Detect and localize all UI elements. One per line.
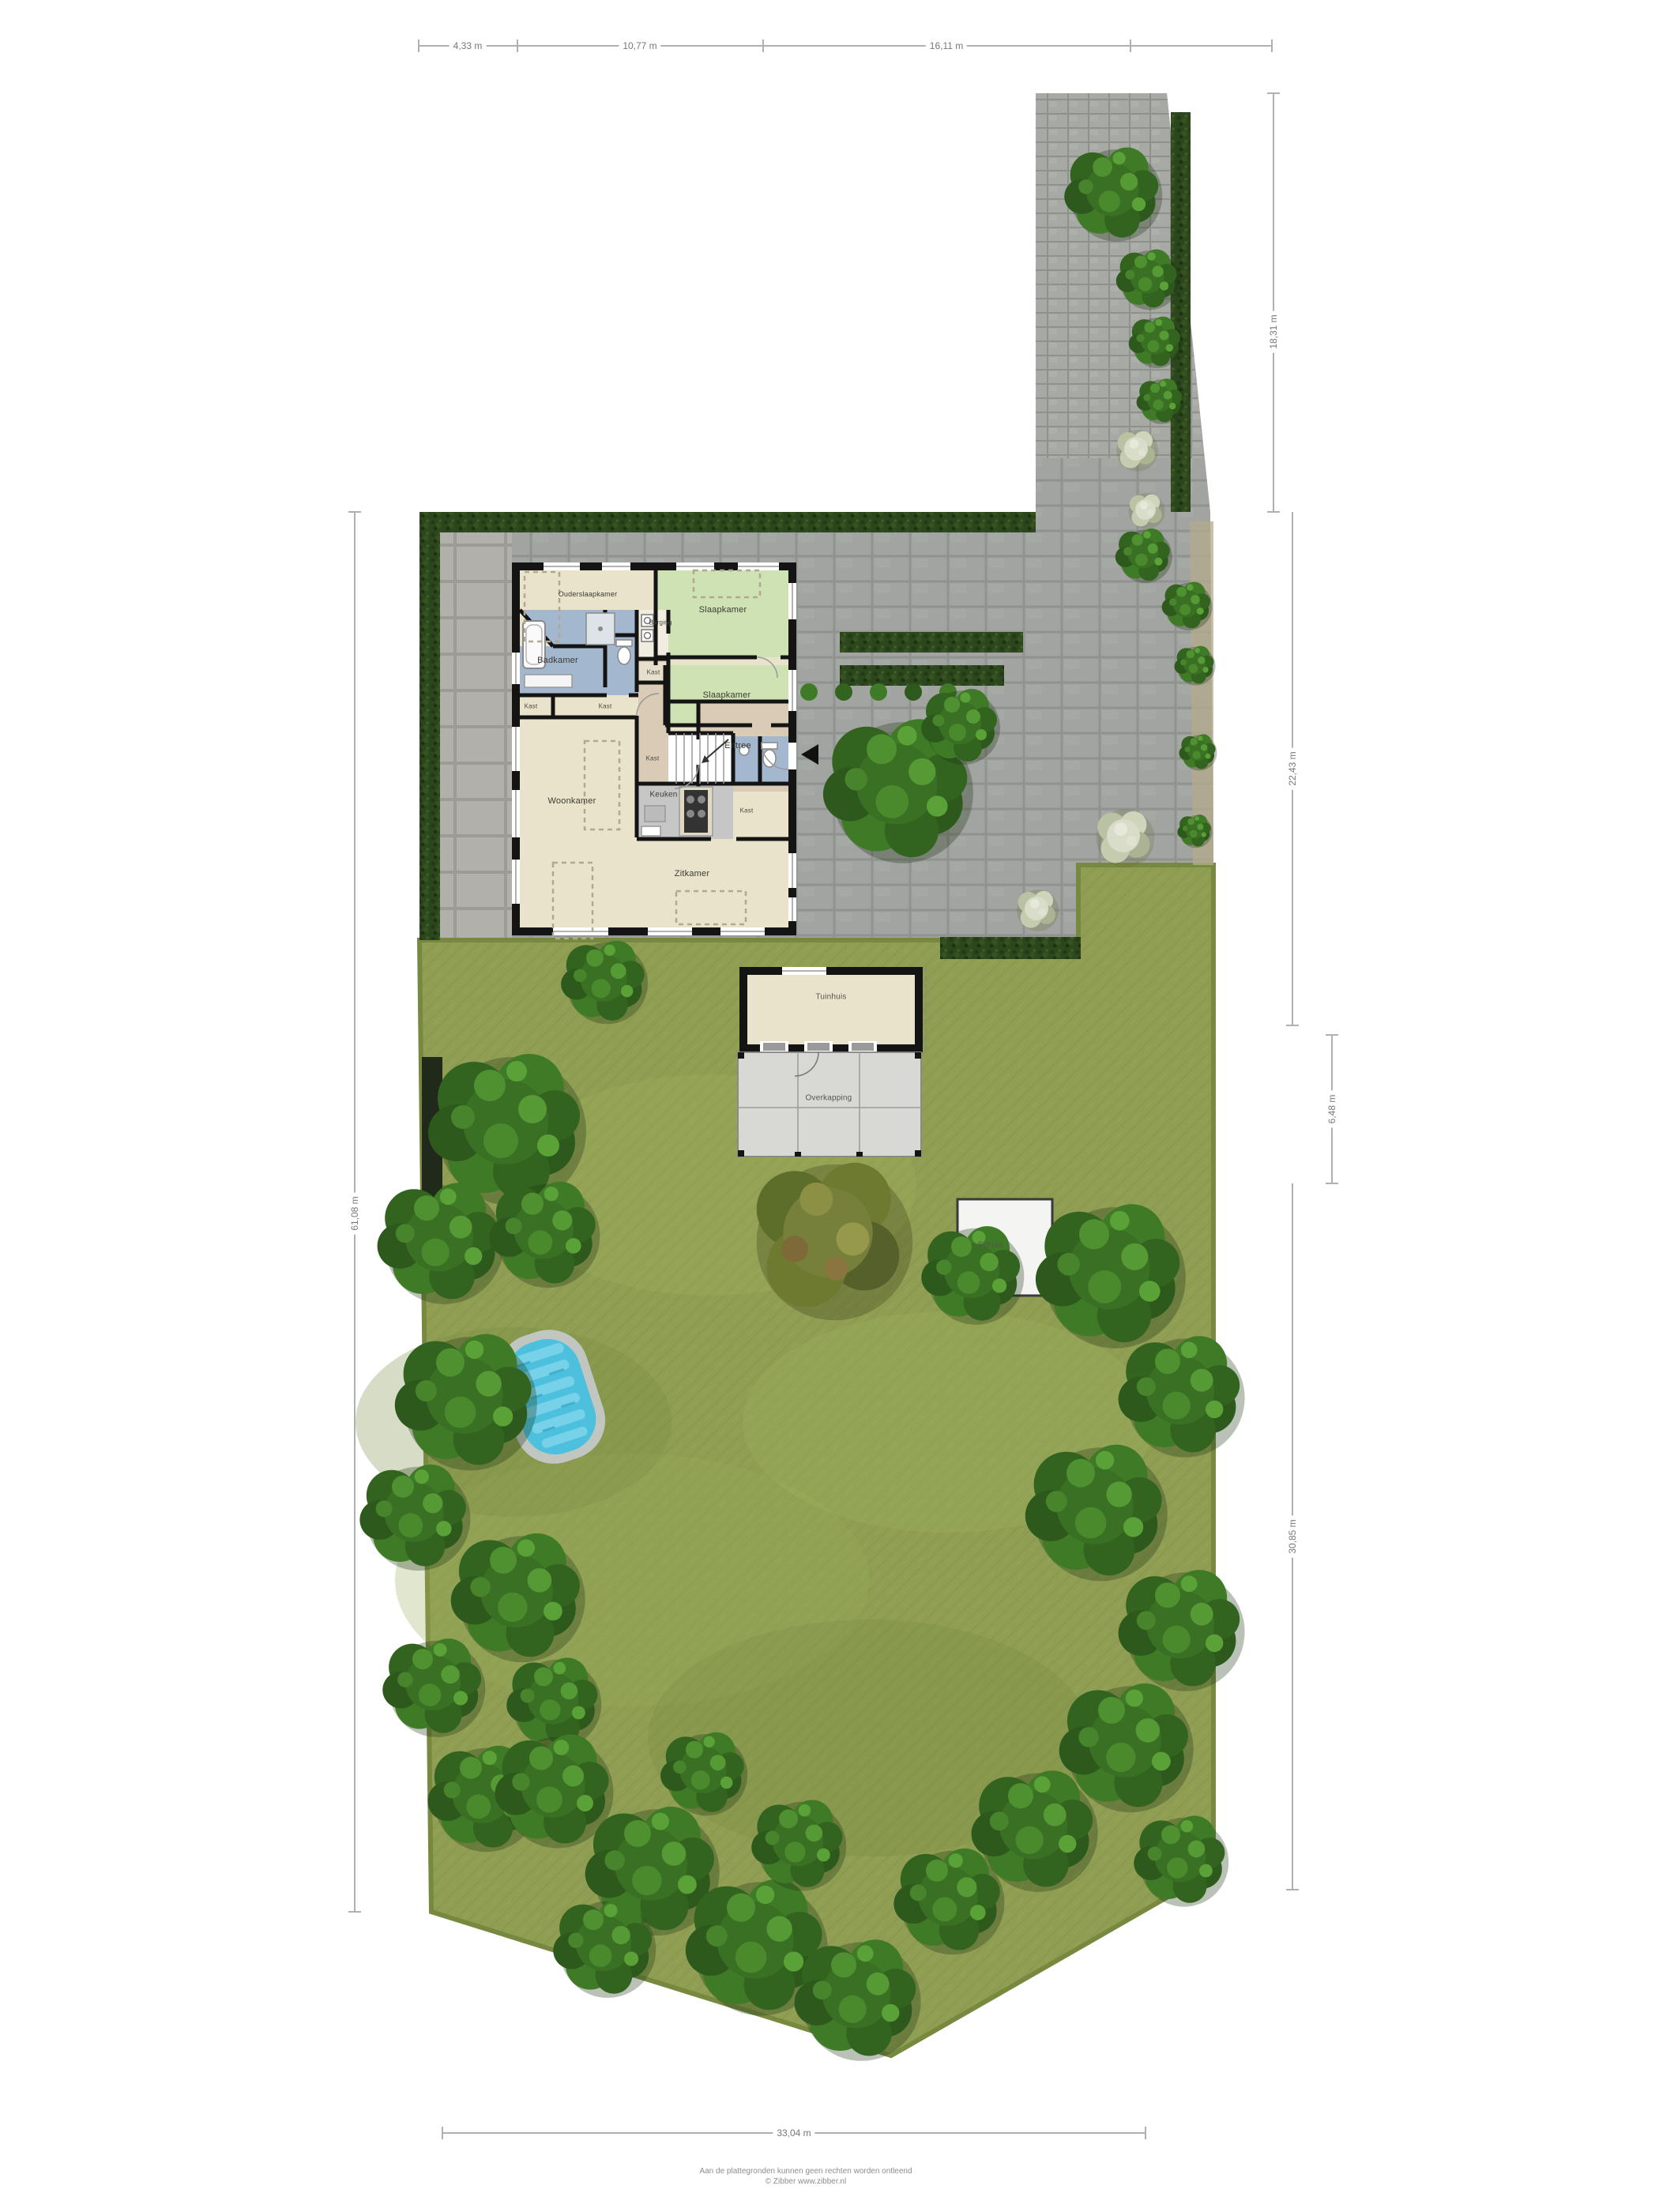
garden-house-doors — [760, 1041, 877, 1052]
room-label-kast-2: Kast — [599, 703, 612, 710]
border-strip-right — [1190, 521, 1213, 865]
room-label-kast-3: Kast — [647, 669, 660, 676]
room-label-kast-4: Kast — [646, 755, 660, 762]
disclaimer-line1: Aan de plattegronden kunnen geen rechten… — [699, 2166, 912, 2176]
hedge-row-mid — [940, 937, 1081, 959]
label-tuinhuis: Tuinhuis — [815, 993, 846, 1002]
site-plan: 4,33 m 10,77 m 16,11 m 33,04 m 61,08 m 1… — [0, 0, 1659, 2212]
room-label-slaapkamer-2: Slaapkamer — [703, 690, 751, 700]
shower — [586, 613, 615, 645]
site-plan-graphic — [0, 0, 1659, 2212]
label-schuur: Schuur — [978, 1241, 1004, 1250]
room-label-slaapkamer-1: Slaapkamer — [699, 605, 747, 615]
toilet-1 — [616, 640, 632, 664]
dim-bottom: 33,04 m — [773, 2127, 814, 2139]
canopy — [738, 1052, 921, 1157]
hedge-driveway — [1171, 112, 1191, 512]
disclaimer-line2: © Zibber www.zibber.nl — [699, 2176, 912, 2187]
garden-house — [739, 967, 926, 1052]
disclaimer: Aan de plattegronden kunnen geen rechten… — [699, 2166, 912, 2187]
room-label-zitkamer: Zitkamer — [675, 869, 709, 878]
hedge-top — [419, 512, 1036, 532]
room-label-keuken: Keuken — [649, 791, 677, 799]
dim-right-2: 22,43 m — [1287, 747, 1298, 789]
bathroom-sink — [525, 675, 572, 687]
room-label-kast-1: Kast — [525, 703, 538, 710]
dim-right-4: 30,85 m — [1287, 1515, 1298, 1557]
room-label-kast-5: Kast — [740, 807, 754, 814]
dim-top-3: 16,11 m — [926, 40, 967, 51]
dim-top-1: 4,33 m — [450, 40, 487, 51]
hedge-bar-2 — [840, 665, 1004, 686]
room-label-badkamer: Badkamer — [537, 656, 578, 665]
room-label-entree: Entree — [724, 741, 751, 750]
room-label-berging: Berging — [649, 619, 672, 626]
dim-right-3: 6,48 m — [1326, 1091, 1337, 1128]
room-label-ouderslaapkamer: Ouderslaapkamer — [559, 590, 618, 598]
room-label-woonkamer: Woonkamer — [548, 796, 596, 806]
hedge-left — [419, 512, 440, 940]
hedge-bar-1 — [840, 632, 1023, 653]
dim-right-1: 18,31 m — [1268, 310, 1279, 352]
dim-left: 61,08 m — [349, 1192, 360, 1234]
side-walkway — [439, 531, 512, 940]
dim-top-2: 10,77 m — [619, 40, 660, 51]
label-overkapping: Overkapping — [806, 1094, 852, 1103]
